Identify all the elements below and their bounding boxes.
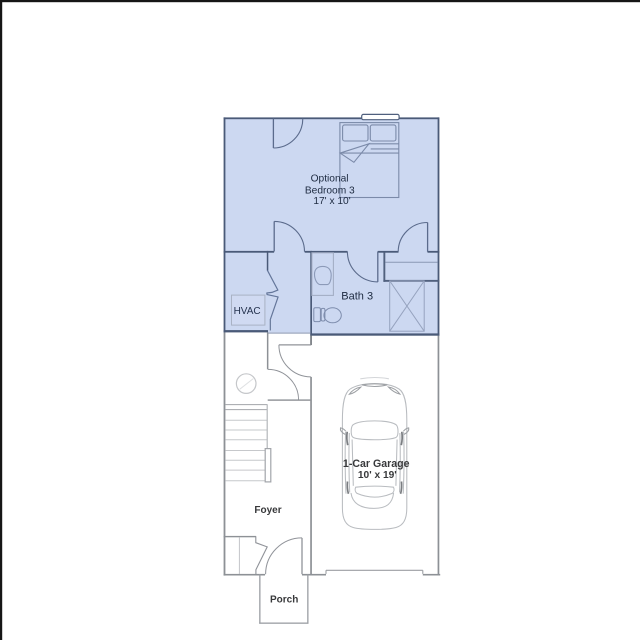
svg-text:1-Car Garage: 1-Car Garage	[343, 458, 410, 470]
svg-text:17' x 10': 17' x 10'	[313, 196, 350, 207]
svg-text:Bath 3: Bath 3	[341, 291, 373, 303]
svg-text:HVAC: HVAC	[234, 306, 261, 317]
svg-text:Optional: Optional	[311, 174, 349, 185]
svg-text:Porch: Porch	[270, 594, 298, 605]
svg-text:Bedroom 3: Bedroom 3	[305, 186, 355, 197]
svg-text:10' x 19': 10' x 19'	[358, 470, 397, 481]
svg-text:Foyer: Foyer	[254, 505, 281, 516]
